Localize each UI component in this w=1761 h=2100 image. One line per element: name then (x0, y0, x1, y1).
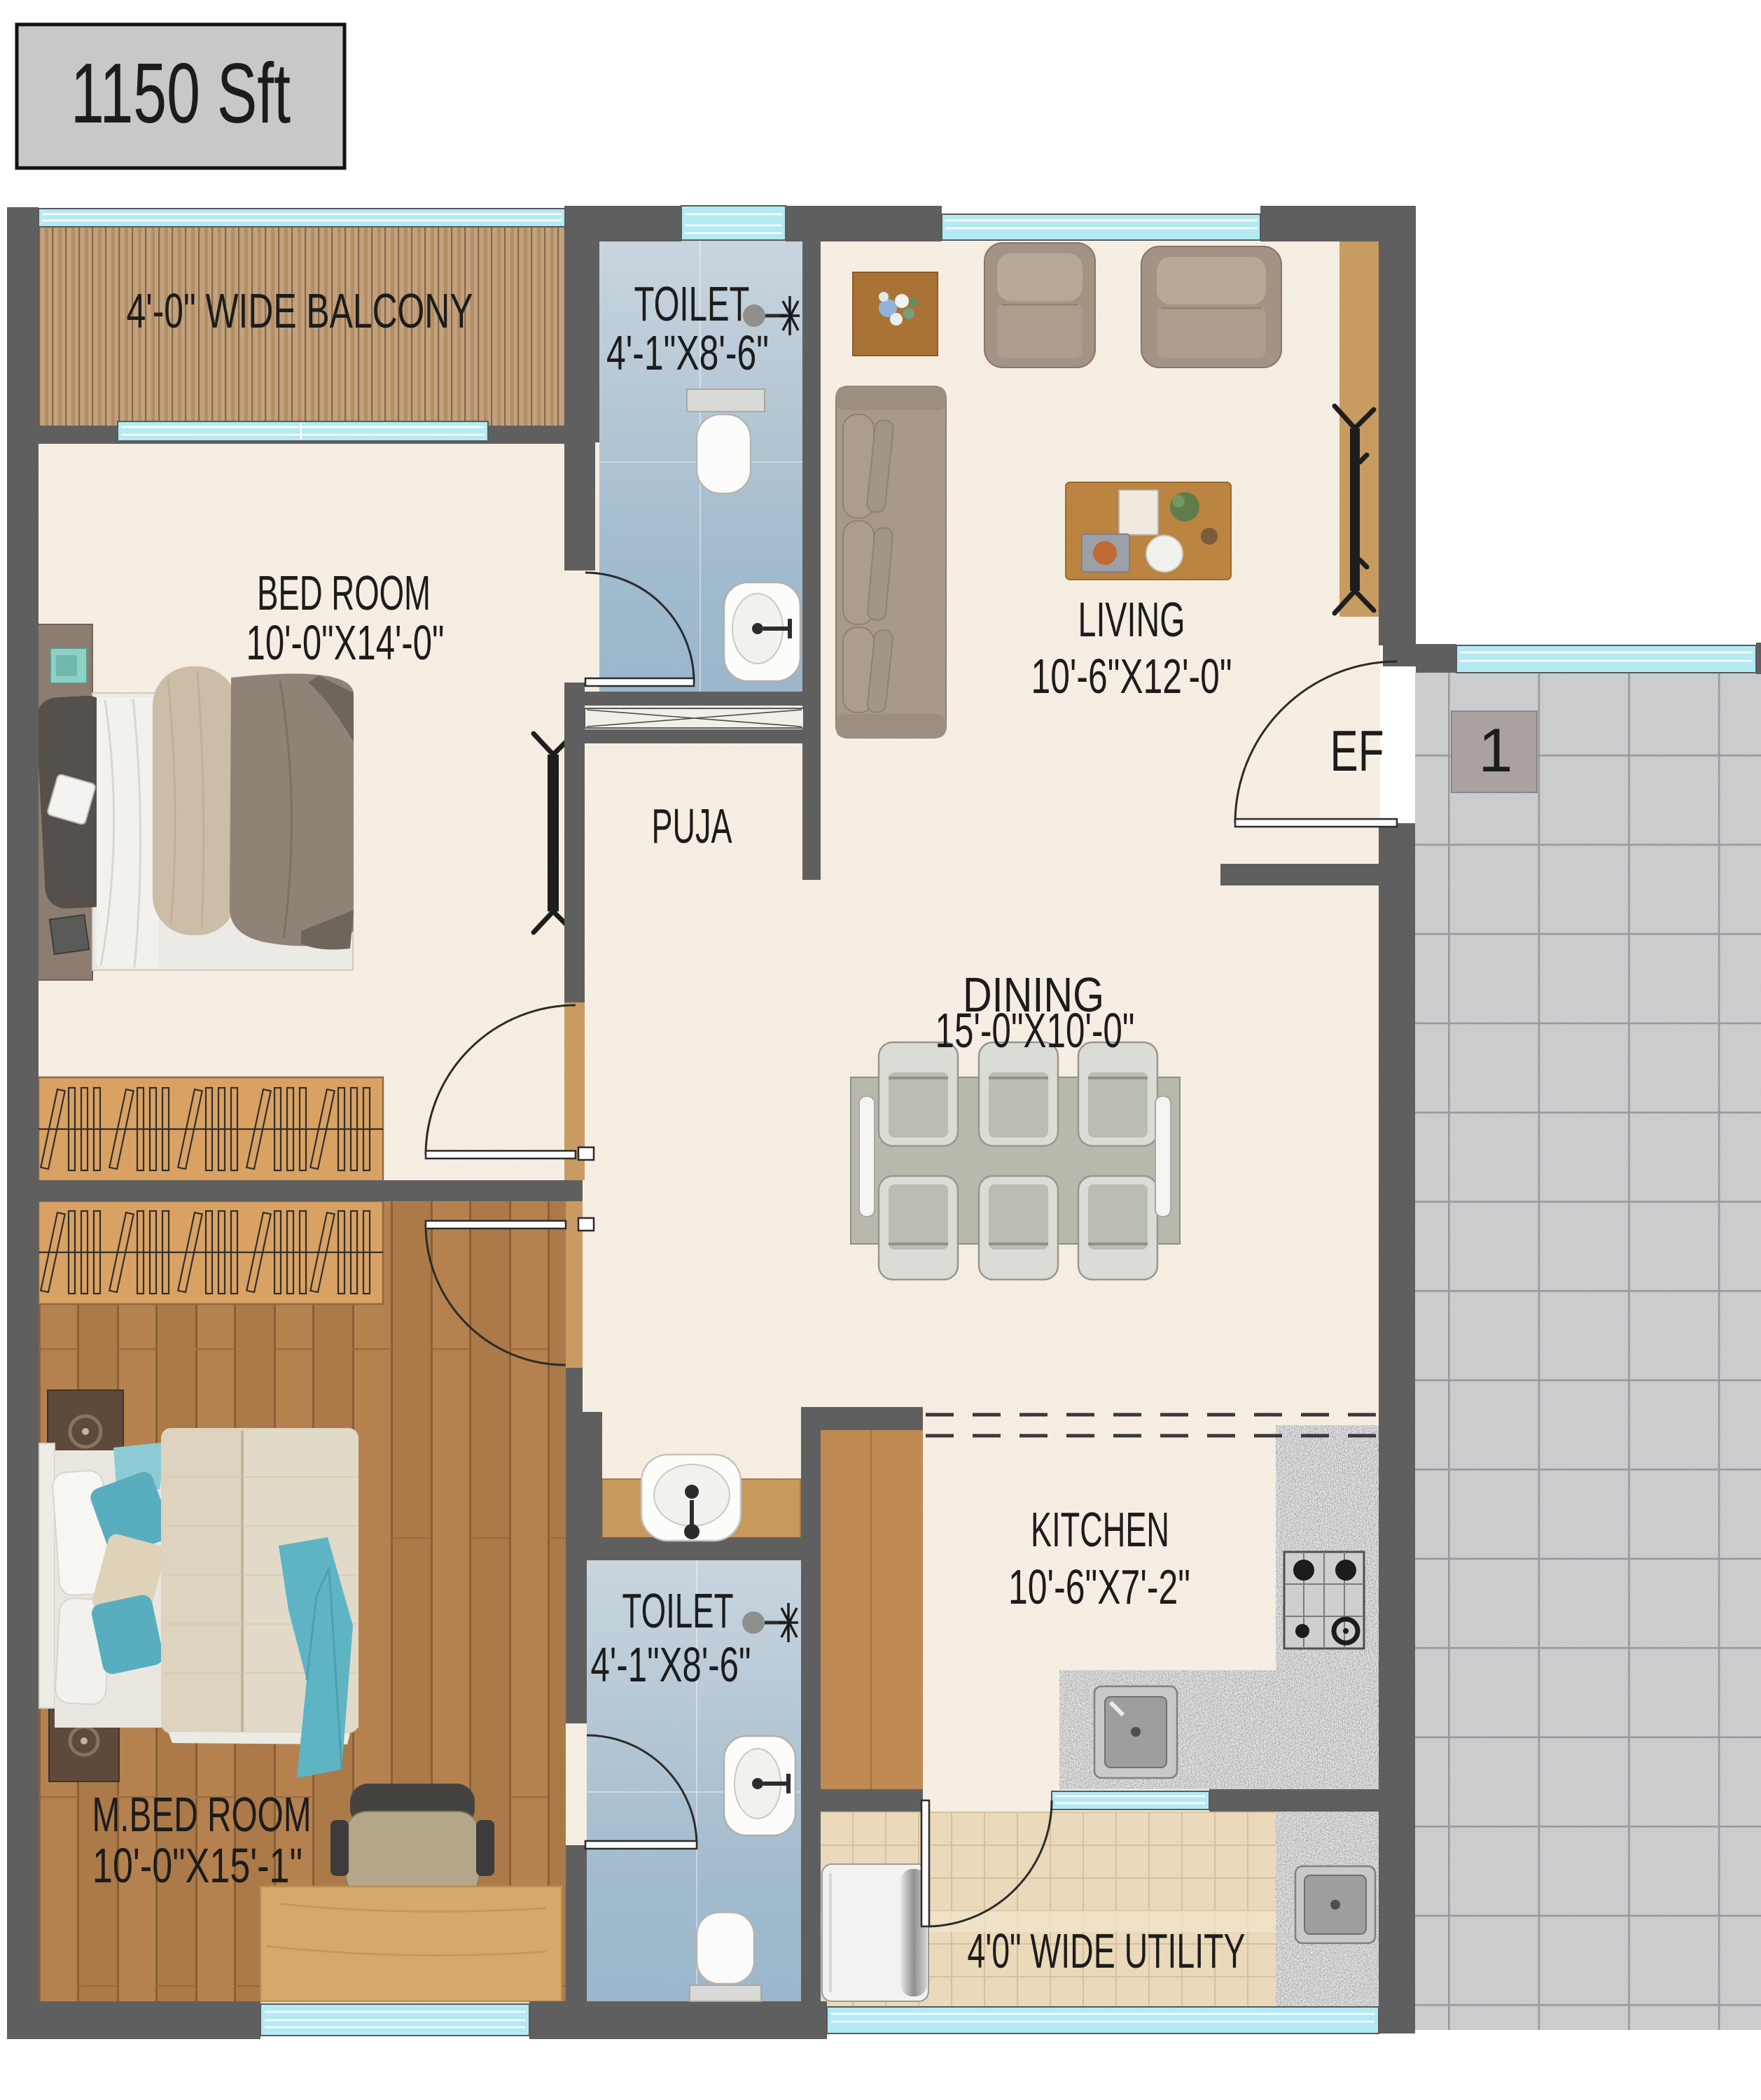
svg-text:EF: EF (1330, 718, 1384, 783)
svg-text:BED ROOM: BED ROOM (257, 566, 431, 620)
svg-text:KITCHEN: KITCHEN (1031, 1502, 1169, 1557)
svg-text:PUJA: PUJA (652, 799, 732, 853)
svg-text:4'0" WIDE UTILITY: 4'0" WIDE UTILITY (968, 1924, 1246, 1978)
svg-text:M.BED ROOM: M.BED ROOM (92, 1787, 312, 1842)
svg-text:10'-0"X14'-0": 10'-0"X14'-0" (246, 615, 445, 670)
svg-text:10'-6"X7'-2": 10'-6"X7'-2" (1008, 1560, 1190, 1614)
svg-text:LIVING: LIVING (1078, 592, 1185, 647)
svg-text:15'-0"X10'-0": 15'-0"X10'-0" (935, 1003, 1135, 1058)
svg-text:TOILET: TOILET (622, 1583, 734, 1638)
svg-text:10'-6"X12'-0": 10'-6"X12'-0" (1031, 649, 1232, 703)
svg-text:10'-0"X15'-1": 10'-0"X15'-1" (92, 1838, 302, 1893)
svg-text:1150 Sft: 1150 Sft (71, 45, 291, 141)
svg-text:4'-1"X8'-6": 4'-1"X8'-6" (606, 325, 769, 380)
svg-text:TOILET: TOILET (634, 276, 750, 331)
svg-text:1: 1 (1479, 715, 1513, 785)
svg-text:4'-1"X8'-6": 4'-1"X8'-6" (591, 1637, 751, 1692)
svg-text:4'-0" WIDE BALCONY: 4'-0" WIDE BALCONY (127, 283, 473, 338)
